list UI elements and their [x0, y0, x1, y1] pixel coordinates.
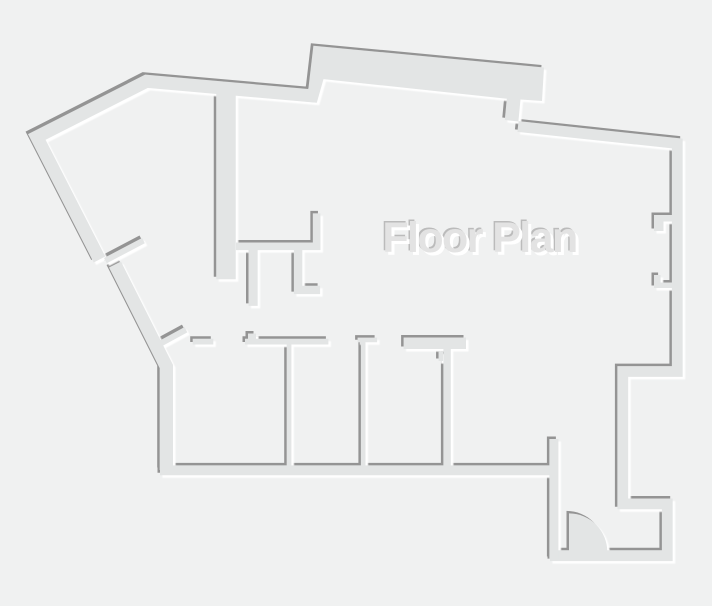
svg-text:Floor Plan: Floor Plan — [382, 214, 576, 262]
